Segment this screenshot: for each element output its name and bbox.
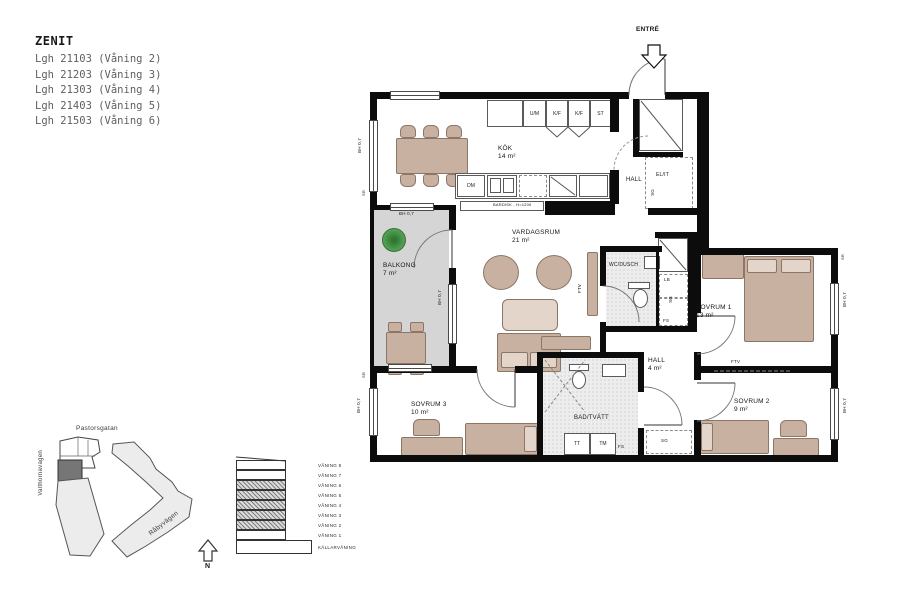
wall [370, 455, 838, 462]
cabinet-label: K/F [553, 111, 561, 117]
section-floor-label: VÅNING 5 [318, 493, 341, 498]
ftv-label: FTV [577, 284, 583, 293]
dining-table [396, 138, 468, 174]
wall [638, 352, 644, 392]
window [390, 203, 434, 211]
wall [638, 428, 644, 455]
dm-label: DM [467, 183, 475, 189]
bardisk-label: BARDISK - H=1200 [492, 202, 532, 207]
window [388, 364, 432, 372]
cabinet-st: ST [590, 100, 611, 127]
wall [600, 326, 606, 356]
window [369, 120, 378, 192]
room-label-kok: KÖK 14 m² [498, 145, 516, 161]
bh-label: BH 0,7 [437, 290, 443, 305]
door-arc [644, 387, 682, 425]
toilet-tank [569, 364, 589, 371]
balcony-chair [410, 322, 424, 332]
pillow [781, 259, 811, 273]
dining-chair [423, 125, 439, 138]
wardrobe [702, 253, 744, 279]
unit-line: Lgh 21303 (Våning 4) [35, 83, 161, 99]
room-label-balkong: BALKONG 7 m² [383, 262, 416, 278]
toilet-bowl [572, 371, 586, 389]
wall [633, 99, 639, 152]
wall [697, 248, 838, 255]
cabinet-kf: K/F [568, 100, 590, 127]
window [369, 388, 378, 436]
section-floor-label: VÅNING 8 [318, 463, 341, 468]
room-label-sovrum1: SOVRUM 1 13 m² [696, 304, 732, 320]
room-label-sovrum3: SOVRUM 3 10 m² [411, 401, 447, 417]
sideboard [541, 336, 591, 350]
fs-label: FS [618, 444, 624, 450]
section-floor-label: VÅNING 6 [318, 483, 341, 488]
unit-line: Lgh 21503 (Våning 6) [35, 114, 161, 130]
floorplan-page: ZENIT Lgh 21103 (Våning 2) Lgh 21203 (Vå… [0, 0, 900, 600]
entry-closet [639, 99, 683, 151]
wall [648, 208, 697, 215]
wall [610, 170, 619, 204]
unit-line: Lgh 21103 (Våning 2) [35, 52, 161, 68]
sr-label: SR [840, 254, 845, 260]
section-floor-row [236, 470, 286, 480]
room-label-elit: EL/IT [656, 172, 669, 178]
sg-label: SG [668, 296, 674, 303]
window [390, 91, 440, 100]
cabinet-label: ST [597, 111, 603, 117]
site-highlight-unit [58, 460, 82, 481]
cabinet-kf: K/F [546, 100, 568, 127]
tm-label: TM [599, 441, 606, 447]
shower-closet [658, 238, 688, 272]
room-name: KÖK [498, 145, 516, 153]
room-area: 7 m² [383, 270, 416, 278]
window [448, 284, 457, 344]
section-floor-row-highlight [236, 520, 286, 530]
dining-chair [400, 125, 416, 138]
street-label-left: Valthornavägen [38, 450, 44, 496]
dining-chair [423, 174, 439, 187]
section-floor-label: KÄLLARVÅNING [318, 545, 356, 550]
room-area: 14 m² [498, 153, 516, 161]
pillow [701, 423, 713, 451]
room-area: 13 m² [696, 312, 732, 320]
site-building-b [112, 442, 192, 557]
wall [697, 366, 838, 373]
site-building-a-wing [56, 478, 104, 556]
room-label-bad: BAD/TVÄTT [574, 415, 609, 423]
wall [449, 205, 456, 230]
tt-label: TT [574, 441, 580, 447]
wall [370, 205, 374, 371]
wall [600, 246, 606, 286]
sink-basin [490, 178, 501, 193]
room-area: 4 m² [648, 365, 665, 373]
bh-label: BH 0,7 [842, 398, 848, 413]
room-label-wc: WC/DUSCH [609, 262, 638, 268]
fs-label: FS [663, 318, 669, 324]
room-name: HALL [648, 357, 665, 365]
room-area: 9 m² [734, 406, 770, 414]
door-arc [697, 383, 735, 421]
bh-label: BH 0,7 [842, 292, 848, 307]
dining-chair [400, 174, 416, 187]
armchair [483, 255, 519, 290]
door-arc [477, 369, 515, 407]
bath-sink [602, 364, 626, 377]
dining-chair [446, 125, 462, 138]
pillow [747, 259, 777, 273]
wall [537, 352, 543, 455]
section-floor-label: VÅNING 7 [318, 473, 341, 478]
bh-label: BH 0,7 [399, 211, 414, 217]
unit-line: Lgh 21203 (Våning 3) [35, 68, 161, 84]
tv-bench [587, 252, 598, 316]
wardrobe-sg [646, 430, 692, 454]
toilet-tank [628, 282, 650, 289]
wall [600, 246, 662, 252]
section-floor-label: VÅNING 1 [318, 533, 341, 538]
desk-chair [780, 420, 807, 437]
desk-chair [413, 419, 440, 436]
bh-label: BH 0,7 [357, 138, 363, 153]
room-label-hall2: HALL 4 m² [648, 357, 665, 373]
room-name: VARDAGSRUM [512, 229, 560, 237]
door-arc [697, 316, 735, 354]
wall [545, 201, 615, 215]
wall [656, 252, 659, 326]
pillow [524, 426, 537, 452]
wall [697, 92, 709, 255]
cabinet-label: K/F [575, 111, 583, 117]
entre-arrow-icon [642, 45, 666, 68]
street-label-bottom: Råbyvägen [148, 510, 180, 537]
plant [382, 228, 406, 252]
room-name: BALKONG [383, 262, 416, 270]
washer: TM [590, 433, 616, 455]
sg-label: SG [650, 189, 656, 196]
cabinet-um: U/M [523, 100, 546, 127]
section-floor-row-highlight [236, 490, 286, 500]
section-floor-row [236, 460, 286, 470]
site-unit-lines [60, 437, 95, 456]
toilet-bowl [633, 289, 648, 308]
sr-label: SR [361, 372, 366, 378]
stove [549, 175, 577, 197]
desk [401, 437, 463, 456]
armchair [536, 255, 572, 290]
section-floor-row-highlight [236, 510, 286, 520]
wall [694, 420, 701, 455]
room-name: SOVRUM 2 [734, 398, 770, 406]
section-floor-label: VÅNING 2 [318, 523, 341, 528]
section-basement-row [236, 540, 312, 554]
coffee-table [502, 299, 558, 331]
project-title: ZENIT [35, 34, 161, 48]
room-label-vardagsrum: VARDAGSRUM 21 m² [512, 229, 560, 245]
elit-closet [645, 157, 693, 209]
desk [773, 438, 819, 456]
site-building-a [60, 437, 100, 468]
counter-dashed [519, 175, 547, 197]
room-label-hall: HALL [626, 177, 642, 185]
north-label: N [205, 563, 210, 572]
header: ZENIT Lgh 21103 (Våning 2) Lgh 21203 (Vå… [35, 34, 161, 130]
ftv-label: FTV [731, 359, 740, 365]
window [830, 283, 839, 335]
wall [600, 326, 692, 332]
sg-label: SG [661, 438, 668, 444]
room-name: SOVRUM 1 [696, 304, 732, 312]
unit-line: Lgh 21403 (Våning 5) [35, 99, 161, 115]
room-area: 10 m² [411, 409, 447, 417]
dryer: TT [564, 433, 590, 455]
wall [633, 152, 683, 157]
street-label-top: Pastorsgatan [76, 425, 118, 432]
room-area: 21 m² [512, 237, 560, 245]
window [830, 388, 839, 440]
wall [610, 99, 619, 132]
cabinet-label: U/M [530, 111, 539, 117]
balcony-chair [388, 322, 402, 332]
dishwasher: DM [457, 175, 485, 197]
kitchen-counter [487, 100, 523, 127]
section-floor-label: VÅNING 3 [318, 513, 341, 518]
section-floor-row-highlight [236, 480, 286, 490]
fridge-front [568, 127, 590, 137]
section-floor-row [236, 530, 286, 540]
sr-label: SR [361, 190, 366, 196]
bh-label: BH 0,7 [356, 398, 362, 413]
counter-end [579, 175, 608, 197]
room-name: SOVRUM 3 [411, 401, 447, 409]
balcony-table [386, 332, 426, 364]
section-floor-label: VÅNING 4 [318, 503, 341, 508]
door-arc [629, 59, 665, 95]
wall [449, 268, 456, 284]
room-label-sovrum2: SOVRUM 2 9 m² [734, 398, 770, 414]
entre-label: ENTRÉ [636, 26, 659, 34]
section-floor-row-highlight [236, 500, 286, 510]
wall [537, 352, 644, 358]
lb-label: LB [664, 277, 670, 283]
north-arrow-icon [199, 540, 217, 561]
sink-basin [503, 178, 514, 193]
fridge-front [546, 127, 568, 137]
